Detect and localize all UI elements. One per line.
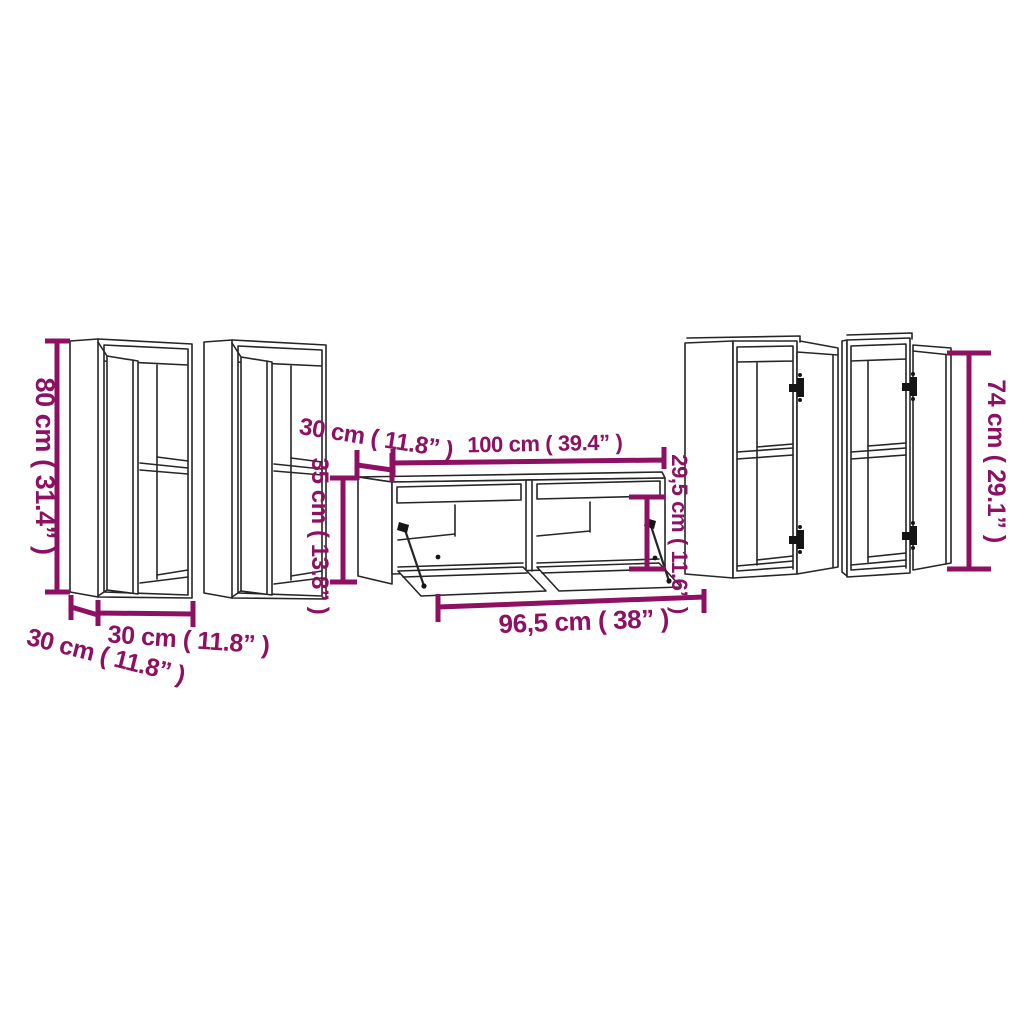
flap-door-left [398, 567, 546, 596]
label-tv-stand-inner-width: 96,5 cm ( 38” ) [498, 603, 669, 639]
label-tv-stand-width: 100 cm ( 39.4” ) [467, 430, 623, 458]
label-right-cabinet-height: 74 cm ( 29.1” ) [982, 379, 1010, 543]
dimension-tv-height-35 [330, 478, 357, 582]
wall-cabinet-right-2 [842, 333, 951, 577]
label-tv-stand-inner-height: 29,5 cm ( 11.6” ) [667, 454, 692, 614]
dimension-depth-30 [71, 595, 98, 620]
dimension-diagram: 80 cm ( 31.4” ) 30 cm ( 11.8” ) 30 cm ( … [0, 0, 1024, 1024]
label-left-cabinet-height: 80 cm ( 31.4” ) [30, 377, 60, 554]
product-dimension-image: 80 cm ( 31.4” ) 30 cm ( 11.8” ) 30 cm ( … [0, 0, 1024, 1024]
wall-cabinet-right-1 [685, 336, 838, 578]
tv-stand-center [358, 472, 681, 596]
label-tv-stand-height: 35 cm ( 13.8” ) [306, 458, 333, 615]
wall-cabinet-left-1 [70, 339, 192, 598]
